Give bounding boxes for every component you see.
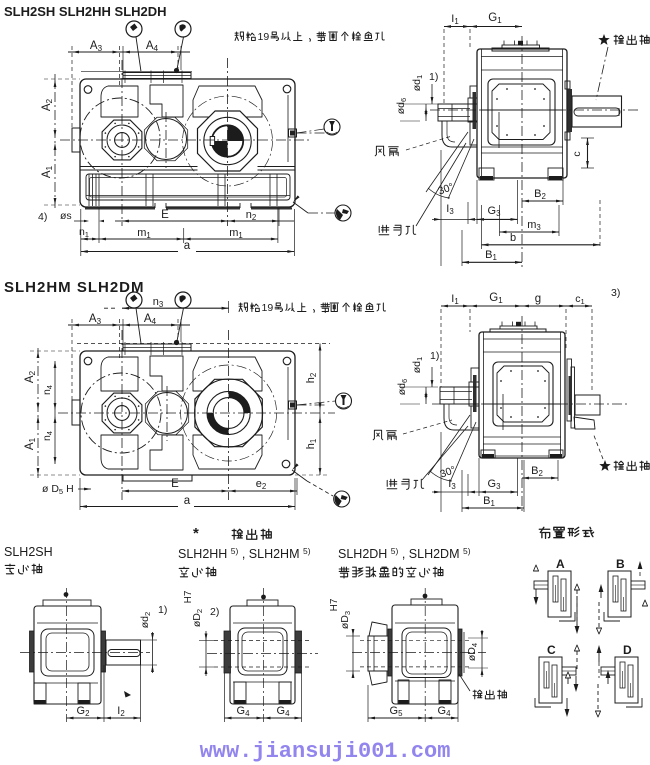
svg-text:H7: H7 <box>329 598 340 611</box>
svg-text:n2: n2 <box>246 209 257 222</box>
svg-text:I3: I3 <box>448 478 456 491</box>
svg-text:4): 4) <box>38 211 47 223</box>
svg-text:E: E <box>161 209 169 221</box>
svg-text:m1: m1 <box>137 227 151 240</box>
svg-text:h2: h2 <box>305 373 318 384</box>
svg-text:ød6: ød6 <box>395 98 408 115</box>
svg-text:A: A <box>556 557 565 571</box>
svg-text:m3: m3 <box>527 219 541 232</box>
svg-text:øD3: øD3 <box>339 611 352 629</box>
svg-text:19: 19 <box>258 31 270 43</box>
svg-text:øs: øs <box>60 210 72 222</box>
svg-text:B2: B2 <box>531 465 543 478</box>
svg-text:A1: A1 <box>41 165 54 178</box>
svg-text:A3: A3 <box>89 313 102 326</box>
svg-text:D: D <box>623 643 632 657</box>
svg-text:G1: G1 <box>488 12 502 25</box>
svg-text:B1: B1 <box>483 495 495 508</box>
svg-text:SLH2DH 5) , SLH2DM 5): SLH2DH 5) , SLH2DM 5) <box>338 546 471 561</box>
svg-text:G5: G5 <box>390 705 404 718</box>
svg-text:A4: A4 <box>146 40 159 53</box>
svg-text:b: b <box>510 232 516 244</box>
svg-text:G4: G4 <box>277 705 291 718</box>
svg-text:h1: h1 <box>305 439 318 450</box>
svg-text:1): 1) <box>430 350 439 362</box>
svg-text:a: a <box>184 495 191 507</box>
svg-text:3): 3) <box>611 287 620 299</box>
svg-text:g: g <box>535 293 541 305</box>
svg-text:G3: G3 <box>488 205 502 218</box>
svg-text:c: c <box>571 151 583 156</box>
svg-text:H7: H7 <box>183 590 194 603</box>
svg-text:G4: G4 <box>237 705 251 718</box>
svg-text:I3: I3 <box>446 203 454 216</box>
svg-text:E: E <box>171 478 179 490</box>
svg-text:A4: A4 <box>144 313 157 326</box>
svg-text:n4: n4 <box>41 431 54 441</box>
svg-text:I1: I1 <box>451 13 458 26</box>
svg-text:n1: n1 <box>79 226 89 239</box>
svg-text:ø D5 H: ø D5 H <box>42 483 74 496</box>
svg-text:m1: m1 <box>229 227 243 240</box>
svg-text:SLH2HM SLH2DM: SLH2HM SLH2DM <box>4 279 145 296</box>
svg-text:19: 19 <box>262 302 274 314</box>
svg-text:G1: G1 <box>489 292 503 305</box>
svg-text:ød2: ød2 <box>139 612 152 629</box>
svg-text:I1: I1 <box>451 293 458 306</box>
svg-text:G3: G3 <box>488 478 502 491</box>
svg-text:B2: B2 <box>534 188 546 201</box>
svg-text:øD2: øD2 <box>191 609 204 627</box>
svg-text:ød6: ød6 <box>396 379 409 396</box>
svg-text:2): 2) <box>210 606 219 618</box>
svg-text:a: a <box>184 240 191 252</box>
svg-text:ød1: ød1 <box>411 75 424 92</box>
svg-text:1): 1) <box>158 604 167 616</box>
svg-text:SLH2SH SLH2HH SLH2DH: SLH2SH SLH2HH SLH2DH <box>4 4 167 19</box>
svg-text:A1: A1 <box>24 437 37 450</box>
svg-text:C: C <box>547 643 556 657</box>
svg-text:n3: n3 <box>153 296 164 309</box>
svg-text:*: * <box>193 525 199 542</box>
svg-text:1): 1) <box>429 71 438 83</box>
svg-text:B1: B1 <box>485 249 497 262</box>
svg-text:c1: c1 <box>575 293 584 306</box>
svg-text:G2: G2 <box>77 705 90 718</box>
svg-text:A2: A2 <box>24 370 37 383</box>
svg-text:ød1: ød1 <box>411 357 424 374</box>
svg-text:A3: A3 <box>90 40 103 53</box>
svg-text:A2: A2 <box>41 98 54 111</box>
svg-text:30°: 30° <box>436 181 455 198</box>
svg-text:B: B <box>616 557 625 571</box>
svg-text:øD4: øD4 <box>466 643 479 661</box>
svg-text:n4: n4 <box>41 385 54 395</box>
svg-text:www.jiansuji001.com: www.jiansuji001.com <box>200 739 451 764</box>
svg-text:e2: e2 <box>256 478 267 491</box>
svg-text:G4: G4 <box>438 705 452 718</box>
svg-text:I2: I2 <box>117 705 124 718</box>
svg-text:SLH2HH 5) , SLH2HM 5): SLH2HH 5) , SLH2HM 5) <box>178 546 311 561</box>
svg-text:SLH2SH: SLH2SH <box>4 545 53 559</box>
